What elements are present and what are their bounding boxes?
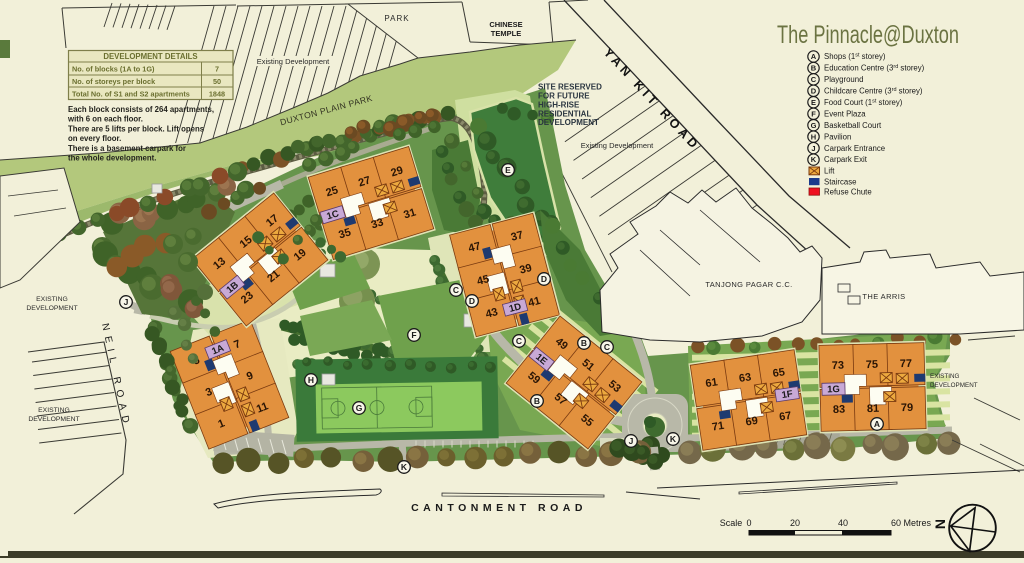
- svg-text:C: C: [453, 285, 459, 295]
- svg-text:69: 69: [745, 415, 759, 429]
- svg-text:Education Centre (3rd storey): Education Centre (3rd storey): [824, 64, 925, 73]
- svg-text:RESIDENTIAL: RESIDENTIAL: [538, 109, 591, 118]
- svg-text:F: F: [811, 110, 816, 119]
- svg-text:DEVELOPMENT: DEVELOPMENT: [930, 382, 978, 389]
- svg-text:Scale: Scale: [720, 518, 743, 528]
- svg-text:D: D: [469, 296, 475, 306]
- svg-text:K: K: [670, 434, 677, 444]
- svg-text:A: A: [811, 52, 817, 61]
- svg-text:Lift: Lift: [824, 167, 835, 176]
- svg-text:No. of blocks (1A to 1G): No. of blocks (1A to 1G): [72, 65, 155, 74]
- svg-text:63: 63: [738, 371, 752, 385]
- svg-text:50: 50: [213, 77, 221, 86]
- svg-text:No. of storeys per block: No. of storeys per block: [72, 77, 156, 86]
- svg-text:61: 61: [705, 376, 719, 390]
- svg-text:71: 71: [711, 420, 725, 434]
- svg-text:the whole development.: the whole development.: [68, 154, 156, 163]
- svg-text:E: E: [811, 98, 816, 107]
- svg-text:EXISTING: EXISTING: [38, 407, 70, 414]
- svg-text:79: 79: [901, 402, 914, 414]
- svg-text:DEVELOPMENT: DEVELOPMENT: [538, 118, 599, 127]
- svg-text:Event Plaza: Event Plaza: [824, 110, 866, 119]
- svg-text:Carpark Exit: Carpark Exit: [824, 155, 868, 164]
- svg-text:DEVELOPMENT DETAILS: DEVELOPMENT DETAILS: [103, 52, 197, 61]
- svg-text:Refuse Chute: Refuse Chute: [824, 188, 872, 197]
- svg-text:73: 73: [832, 360, 845, 372]
- svg-text:TANJONG PAGAR C.C.: TANJONG PAGAR C.C.: [705, 280, 792, 289]
- svg-text:77: 77: [900, 358, 913, 370]
- svg-text:1G: 1G: [827, 384, 840, 395]
- svg-text:EXISTING: EXISTING: [36, 296, 68, 303]
- svg-text:B: B: [811, 64, 817, 73]
- svg-text:1F: 1F: [781, 389, 794, 402]
- svg-text:Basketball Court: Basketball Court: [824, 121, 882, 130]
- svg-text:J: J: [811, 144, 815, 153]
- svg-text:J: J: [124, 297, 129, 307]
- svg-text:Total No. of S1 and S2 apartme: Total No. of S1 and S2 apartments: [72, 90, 190, 99]
- svg-text:67: 67: [778, 410, 792, 424]
- svg-text:E: E: [505, 165, 511, 175]
- svg-text:0: 0: [746, 518, 751, 528]
- svg-text:1848: 1848: [209, 90, 225, 99]
- svg-text:CHINESE: CHINESE: [489, 20, 522, 29]
- svg-text:J: J: [629, 436, 634, 446]
- svg-text:G: G: [811, 121, 817, 130]
- svg-text:with 6 on each floor.: with 6 on each floor.: [67, 115, 143, 124]
- svg-text:F: F: [411, 330, 416, 340]
- svg-text:Existing Development: Existing Development: [581, 141, 654, 150]
- svg-text:HIGH-RISE: HIGH-RISE: [538, 100, 580, 109]
- svg-text:C: C: [604, 342, 610, 352]
- svg-text:Carpark Entrance: Carpark Entrance: [824, 144, 885, 153]
- svg-text:C: C: [811, 75, 817, 84]
- svg-text:N: N: [932, 519, 948, 529]
- svg-text:7: 7: [215, 65, 219, 74]
- svg-text:40: 40: [838, 518, 848, 528]
- svg-text:Playground: Playground: [824, 75, 863, 84]
- svg-text:60 Metres: 60 Metres: [891, 518, 932, 528]
- svg-text:B: B: [534, 396, 540, 406]
- svg-text:THE ARRIS: THE ARRIS: [862, 292, 905, 301]
- svg-text:B: B: [581, 338, 587, 348]
- svg-text:Food Court (1st storey): Food Court (1st storey): [824, 98, 903, 107]
- svg-text:on every floor.: on every floor.: [68, 134, 121, 143]
- svg-text:65: 65: [772, 366, 786, 380]
- svg-text:The Pinnacle@Duxton: The Pinnacle@Duxton: [777, 21, 959, 49]
- svg-text:81: 81: [867, 403, 880, 415]
- svg-text:K: K: [811, 155, 817, 164]
- svg-text:EXISTING: EXISTING: [930, 373, 959, 380]
- svg-text:Each block consists of 264 apa: Each block consists of 264 apartments,: [68, 105, 214, 114]
- svg-text:D: D: [811, 87, 817, 96]
- svg-text:D: D: [541, 274, 547, 284]
- svg-text:CANTONMENT ROAD: CANTONMENT ROAD: [411, 502, 587, 514]
- svg-text:Childcare Centre (3rd storey): Childcare Centre (3rd storey): [824, 87, 923, 96]
- svg-text:75: 75: [866, 359, 879, 371]
- svg-text:C: C: [516, 336, 522, 346]
- svg-text:Pavilion: Pavilion: [824, 132, 851, 141]
- svg-text:PARK: PARK: [384, 14, 409, 23]
- svg-text:FOR FUTURE: FOR FUTURE: [538, 92, 590, 101]
- svg-text:There is a basement carpark fo: There is a basement carpark for: [68, 144, 186, 153]
- svg-text:DEVELOPMENT: DEVELOPMENT: [26, 305, 77, 312]
- svg-text:SITE RESERVED: SITE RESERVED: [538, 83, 602, 92]
- svg-text:There are 5 lifts per block. L: There are 5 lifts per block. Lift opens: [68, 125, 205, 134]
- svg-text:TEMPLE: TEMPLE: [491, 29, 521, 38]
- svg-text:H: H: [811, 132, 816, 141]
- svg-text:Shops (1st storey): Shops (1st storey): [824, 52, 886, 61]
- svg-text:Existing Development: Existing Development: [257, 57, 330, 66]
- svg-text:DEVELOPMENT: DEVELOPMENT: [28, 416, 79, 423]
- svg-text:20: 20: [790, 518, 800, 528]
- svg-text:Staircase: Staircase: [824, 178, 857, 187]
- svg-text:G: G: [356, 403, 363, 413]
- svg-text:83: 83: [833, 404, 846, 416]
- svg-text:A: A: [874, 419, 880, 429]
- svg-text:H: H: [308, 375, 314, 385]
- svg-text:K: K: [401, 462, 408, 472]
